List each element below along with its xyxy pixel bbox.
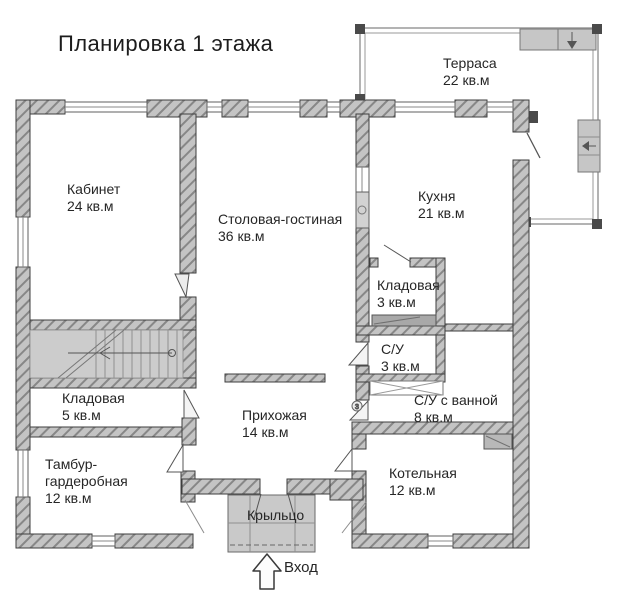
staircase	[30, 330, 183, 378]
room-label-office: Кабинет 24 кв.м	[67, 181, 120, 215]
entrance-label: Вход	[284, 559, 318, 576]
room-label-wc: С/У 3 кв.м	[381, 341, 420, 375]
terrace-steps-top	[520, 29, 596, 50]
page-title: Планировка 1 этажа	[58, 31, 273, 57]
kitchen-wall-inserts	[356, 167, 369, 228]
room-area: 21 кв.м	[418, 205, 465, 222]
room-name: Кабинет	[67, 181, 120, 198]
room-area: 12 кв.м	[45, 490, 139, 507]
room-name: С/У	[381, 341, 420, 358]
room-label-porch: Крыльцо	[247, 507, 304, 524]
room-name: Столовая-гостиная	[218, 211, 342, 228]
room-name: Кухня	[418, 188, 465, 205]
room-area: 3 кв.м	[377, 294, 440, 311]
room-label-pantry-small: Кладовая 3 кв.м	[377, 277, 440, 311]
room-name: Кладовая	[377, 277, 440, 294]
room-label-kitchen: Кухня 21 кв.м	[418, 188, 465, 222]
room-name: Кладовая	[62, 390, 125, 407]
room-label-terrace: Терраса 22 кв.м	[443, 55, 497, 89]
room-name: Тамбур-гардеробная	[45, 456, 139, 490]
terrace-steps-side	[578, 120, 600, 172]
room-name: Прихожая	[242, 407, 307, 424]
room-label-hallway: Прихожая 14 кв.м	[242, 407, 307, 441]
room-area: 12 кв.м	[389, 482, 457, 499]
floor-plan-page: 3 Планировка 1 этажа Терраса 22 кв.м Каб…	[0, 0, 626, 600]
room-area: 3 кв.м	[381, 358, 420, 375]
floor-plan-canvas: 3	[0, 0, 626, 600]
room-label-dining-living: Столовая-гостиная 36 кв.м	[218, 211, 342, 245]
room-name: С/У с ванной	[414, 392, 498, 409]
room-label-pantry: Кладовая 5 кв.м	[62, 390, 125, 424]
room-label-wc-bath: С/У с ванной 8 кв.м	[414, 392, 498, 426]
room-area: 8 кв.м	[414, 409, 498, 426]
entrance-arrow-icon	[253, 554, 281, 589]
room-name: Крыльцо	[247, 507, 304, 524]
room-area: 14 кв.м	[242, 424, 307, 441]
door-mark: 3	[355, 404, 359, 411]
room-name: Котельная	[389, 465, 457, 482]
room-area: 36 кв.м	[218, 228, 342, 245]
room-area: 5 кв.м	[62, 407, 125, 424]
room-area: 24 кв.м	[67, 198, 120, 215]
room-label-boiler: Котельная 12 кв.м	[389, 465, 457, 499]
room-name: Терраса	[443, 55, 497, 72]
terrace-door-leaf	[527, 133, 540, 158]
room-area: 22 кв.м	[443, 72, 497, 89]
room-label-vestibule: Тамбур-гардеробная 12 кв.м	[45, 456, 139, 507]
